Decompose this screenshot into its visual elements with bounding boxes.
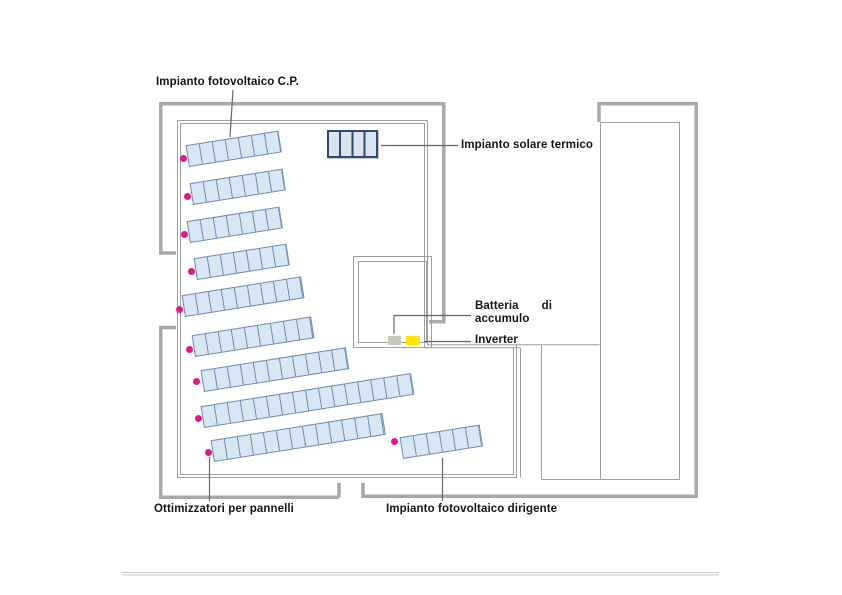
optimizer-dot-7 <box>193 378 200 385</box>
label-solar-thermal: Impianto solare termico <box>461 139 593 152</box>
optimizer-dot-1 <box>180 155 187 162</box>
label-pv-cp: Impianto fotovoltaico C.P. <box>156 76 299 89</box>
optimizer-dot-10 <box>391 438 398 445</box>
optimizer-dot-8 <box>195 415 202 422</box>
optimizer-dot-5 <box>176 306 183 313</box>
right-roof-inner <box>542 123 680 480</box>
optimizer-dot-9 <box>205 449 212 456</box>
solar-thermal-panel <box>327 130 378 158</box>
courtyard-outer <box>354 257 432 348</box>
label-optimizers: Ottimizzatori per pannelli <box>154 503 294 516</box>
leader-battery <box>394 316 471 335</box>
optimizer-dot-2 <box>184 193 191 200</box>
label-battery-word1: Batteria <box>475 300 519 313</box>
inverter-box <box>406 336 420 345</box>
leader-pv-cp <box>230 90 233 137</box>
label-battery: Batteria di accumulo <box>475 300 552 326</box>
label-battery-line1: Batteria di <box>475 300 552 313</box>
separator-line <box>122 573 719 576</box>
label-pv-dirigente: Impianto fotovoltaico dirigente <box>386 503 557 516</box>
label-inverter: Inverter <box>475 334 518 347</box>
label-battery-word2: di <box>542 300 552 313</box>
optimizer-dot-4 <box>188 268 195 275</box>
battery-box <box>388 336 401 345</box>
label-battery-line2: accumulo <box>475 313 552 326</box>
roof-plan-diagram: Impianto fotovoltaico C.P. Impianto sola… <box>0 0 842 595</box>
corridor-lines <box>521 345 542 480</box>
courtyard-inner <box>359 262 427 343</box>
optimizer-dot-3 <box>181 231 188 238</box>
optimizer-dot-6 <box>186 346 193 353</box>
